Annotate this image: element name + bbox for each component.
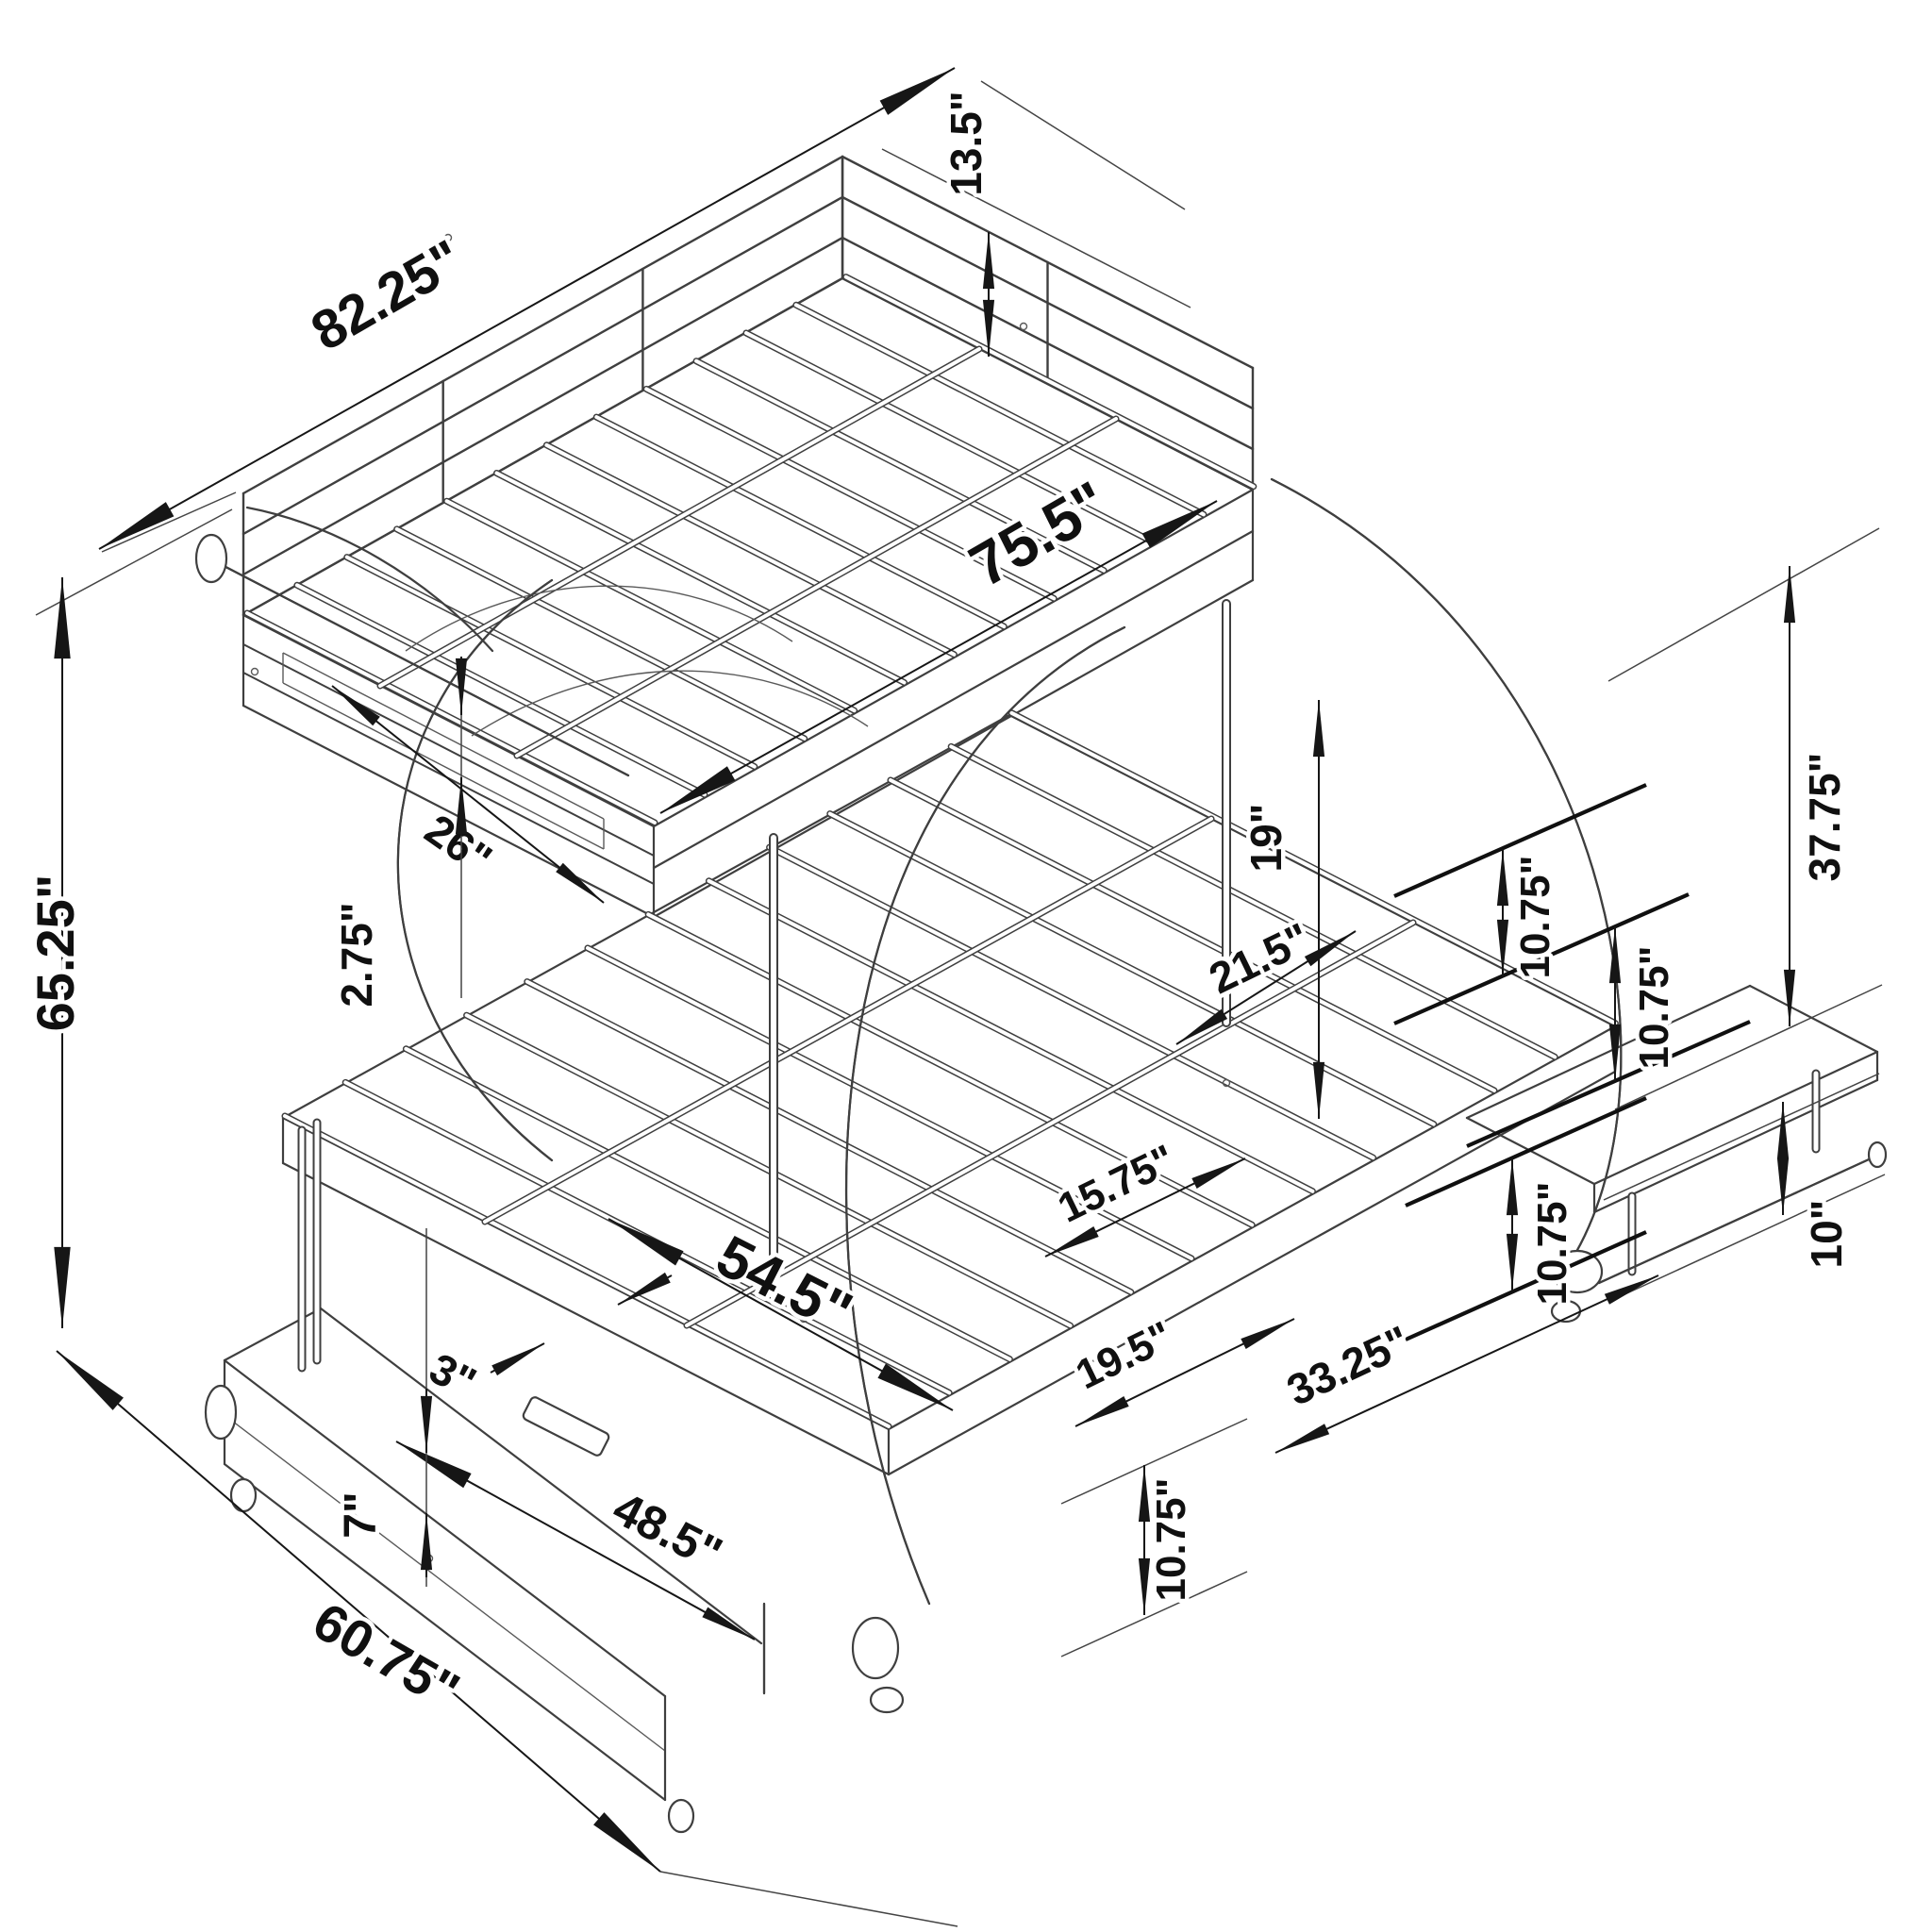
dim-21-5: 21.5" xyxy=(1176,913,1356,1044)
upper-guard-back-posts xyxy=(243,157,842,615)
frame-line xyxy=(225,1464,665,1800)
dim-10-75-a-label: 10.75" xyxy=(1512,856,1558,979)
frame-line xyxy=(654,490,1253,826)
futon-caster xyxy=(871,1688,903,1712)
dim-48-5: 48.5" xyxy=(396,1441,755,1640)
dim-65-25-label: 65.25" xyxy=(25,874,85,1032)
dim-82-25-label: 82.25" xyxy=(301,228,473,363)
shelf-legs xyxy=(1632,1074,1816,1272)
slat-line xyxy=(243,197,842,534)
shelf-line xyxy=(1467,986,1750,1118)
futon-deck-slats xyxy=(285,713,1615,1426)
dim-15-75: 15.75" xyxy=(1045,1136,1245,1257)
upper-guard-back-slats xyxy=(243,157,842,615)
dim-7: 7" xyxy=(336,1228,426,1587)
dim-2-75-label: 2.75" xyxy=(332,902,381,1007)
dim-26-label: 26" xyxy=(416,805,501,884)
dim-60-75-label: 60.75" xyxy=(304,1591,470,1721)
frame-line xyxy=(321,1308,761,1643)
head-roll-cap xyxy=(196,535,226,582)
diagram-stage: 82.25" 13.5" 75.5" 26" 2.75" 65.25" xyxy=(0,0,1932,1932)
dim-10-75-d-label: 10.75" xyxy=(1148,1478,1194,1602)
dim-54-5: 54.5" xyxy=(608,1219,953,1410)
trundle-roll-cap xyxy=(206,1386,236,1439)
extension-line-thick xyxy=(1406,1232,1646,1340)
dim-19-5: 19.5" xyxy=(1069,1313,1294,1426)
extension-line xyxy=(981,81,1185,209)
dim-19-label: 19" xyxy=(1241,804,1291,873)
dim-65-25: 65.25" xyxy=(25,509,232,1328)
extension-line xyxy=(1604,1074,1879,1200)
drawer-handle xyxy=(522,1396,610,1457)
dimension-annotations: 82.25" 13.5" 75.5" 26" 2.75" 65.25" xyxy=(25,68,1885,1926)
frame-line xyxy=(889,1072,1615,1474)
extension-line-thick xyxy=(1406,1098,1646,1206)
dim-48-5-label: 48.5" xyxy=(605,1481,730,1580)
dimension-line xyxy=(99,68,955,549)
trundle-posts xyxy=(302,1123,317,1368)
dim-33-25-label: 33.25" xyxy=(1279,1316,1417,1415)
dim-3: 3" xyxy=(422,1275,672,1407)
screw-hole xyxy=(252,669,258,675)
dim-75-5-label: 75.5" xyxy=(958,468,1119,600)
trundle-drawer xyxy=(206,1123,761,1832)
dim-10-75-b-label: 10.75" xyxy=(1631,946,1677,1070)
futon-foot-cap xyxy=(853,1618,898,1678)
dim-7-label: 7" xyxy=(336,1491,386,1538)
dim-37-75-label: 37.75" xyxy=(1800,753,1849,882)
dimension-arrow xyxy=(491,1343,544,1373)
bunk-bed-dimension-diagram: 82.25" 13.5" 75.5" 26" 2.75" 65.25" xyxy=(0,0,1932,1932)
dim-3-label: 3" xyxy=(422,1343,484,1407)
foot-rail-cap xyxy=(1869,1142,1886,1167)
frame-line xyxy=(225,1308,321,1360)
extension-line xyxy=(882,149,1191,308)
dim-10-75-c-label: 10.75" xyxy=(1529,1182,1575,1306)
dim-60-75: 60.75" xyxy=(57,1351,958,1926)
lower-futon xyxy=(283,604,1615,1712)
dim-13-5-label: 13.5" xyxy=(941,91,991,195)
screw-hole xyxy=(1021,324,1027,330)
dim-10-75-c: 10.75" xyxy=(1406,1098,1646,1340)
upper-deck-slats xyxy=(247,277,1254,823)
trundle-caster xyxy=(231,1479,256,1511)
dim-10-label: 10" xyxy=(1802,1200,1851,1269)
dim-19-5-label: 19.5" xyxy=(1069,1313,1179,1399)
slat-line xyxy=(243,238,842,575)
extension-line xyxy=(1608,528,1879,681)
dim-33-25: 33.25" xyxy=(1275,1275,1658,1453)
frame-line xyxy=(654,531,1253,868)
trundle-caster xyxy=(669,1800,693,1832)
frame-line xyxy=(225,1360,665,1696)
dim-10-75-d: 10.75" xyxy=(1061,1419,1247,1657)
upper-guard-right-posts xyxy=(842,157,1253,490)
extension-line xyxy=(660,1872,958,1926)
